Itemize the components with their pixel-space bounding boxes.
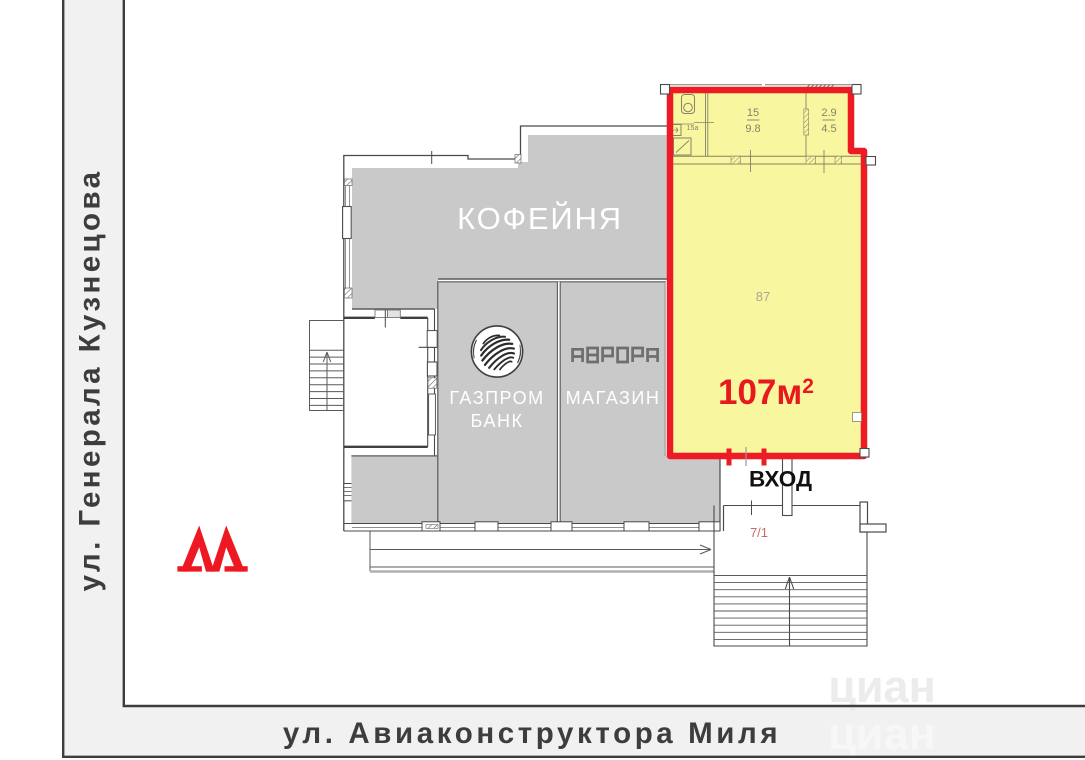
svg-text:КОФЕЙНЯ: КОФЕЙНЯ bbox=[457, 200, 623, 236]
svg-text:107м2: 107м2 bbox=[718, 373, 814, 412]
svg-text:15: 15 bbox=[747, 107, 759, 119]
svg-text:2.9: 2.9 bbox=[821, 107, 836, 119]
svg-text:ГАЗПРОМ: ГАЗПРОМ bbox=[449, 388, 544, 408]
svg-text:87: 87 bbox=[756, 289, 770, 304]
svg-text:7/1: 7/1 bbox=[750, 525, 768, 540]
svg-text:15а: 15а bbox=[687, 125, 699, 132]
svg-text:4.5: 4.5 bbox=[821, 123, 836, 135]
svg-text:БАНК: БАНК bbox=[471, 411, 524, 431]
svg-text:ул. Генерала Кузнецова: ул. Генерала Кузнецова bbox=[74, 169, 107, 592]
svg-text:циан: циан bbox=[828, 708, 936, 759]
svg-text:ВХОД: ВХОД bbox=[749, 467, 812, 492]
svg-text:циан: циан bbox=[828, 661, 936, 712]
svg-text:ул. Авиаконструктора Миля: ул. Авиаконструктора Миля bbox=[283, 717, 781, 750]
svg-text:9.8: 9.8 bbox=[745, 123, 760, 135]
svg-text:МАГАЗИН: МАГАЗИН bbox=[566, 388, 661, 408]
